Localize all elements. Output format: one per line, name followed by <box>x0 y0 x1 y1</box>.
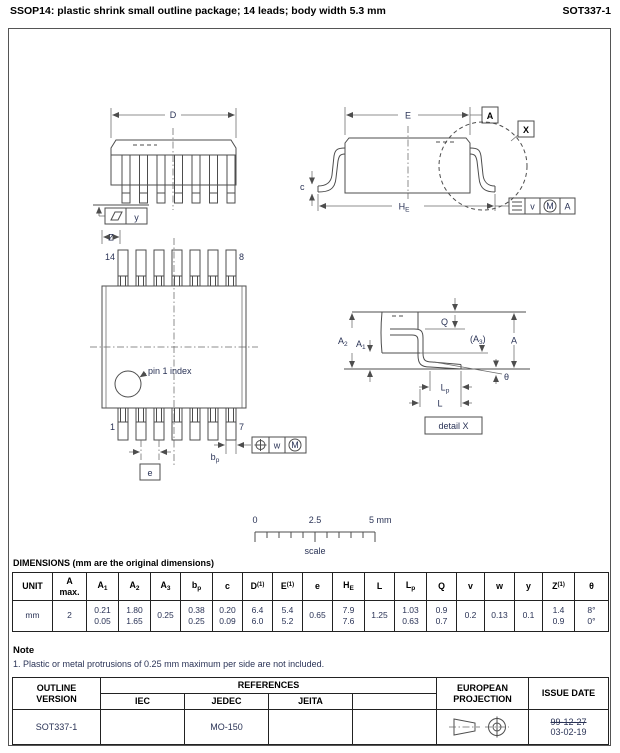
dim-label-e-pitch: e <box>147 468 152 478</box>
col-a3: A3 <box>151 573 181 601</box>
blank-reference-header <box>353 694 437 710</box>
val-bp: 0.380.25 <box>181 601 213 632</box>
dimensions-header-row: UNIT Amax. A1 A2 A3 bp c D(1) E(1) e HE … <box>13 573 609 601</box>
european-projection-header: EUROPEANPROJECTION <box>437 678 529 710</box>
datum-a-label: A <box>487 111 494 121</box>
val-e: 0.65 <box>303 601 333 632</box>
val-theta: 8°0° <box>575 601 609 632</box>
flatness-symbol <box>111 212 122 220</box>
front-view-leads <box>122 155 235 203</box>
val-a2: 1.801.65 <box>119 601 151 632</box>
col-c: c <box>213 573 243 601</box>
footer-value-row: SOT337-1 MO-150 99-12-27 03-02-19 <box>13 710 609 745</box>
pin-1-label: 1 <box>110 422 115 432</box>
pin-8-label: 8 <box>239 252 244 262</box>
val-unit: mm <box>13 601 53 632</box>
scale-bar-ruler <box>255 532 375 542</box>
dim-label-a3: (A3) <box>470 334 486 346</box>
dimensions-table: UNIT Amax. A1 A2 A3 bp c D(1) E(1) e HE … <box>12 572 609 632</box>
dim-label-l: L <box>437 399 442 409</box>
issue-date-value: 99-12-27 03-02-19 <box>529 710 609 745</box>
val-a-max: 2 <box>53 601 87 632</box>
dim-label-bp: bp <box>211 452 220 464</box>
col-a-max: Amax. <box>53 573 87 601</box>
tol-w-label: w <box>273 441 281 451</box>
tol-datum-a-label: A <box>564 202 570 212</box>
dim-label-z: Z <box>108 233 114 243</box>
scale-caption: scale <box>304 546 325 556</box>
col-l: L <box>365 573 395 601</box>
val-he: 7.97.6 <box>333 601 365 632</box>
col-e-cap: E(1) <box>273 573 303 601</box>
val-d: 6.46.0 <box>243 601 273 632</box>
dim-label-c: c <box>300 182 305 192</box>
symmetry-symbol <box>512 202 522 210</box>
col-d: D(1) <box>243 573 273 601</box>
scale-tick-2-5: 2.5 <box>309 515 322 525</box>
footer-header-row-1: OUTLINEVERSION REFERENCES EUROPEANPROJEC… <box>13 678 609 694</box>
col-unit: UNIT <box>13 573 53 601</box>
dim-label-d: D <box>170 110 177 120</box>
jeita-header: JEITA <box>269 694 353 710</box>
col-w: w <box>485 573 515 601</box>
val-z: 1.40.9 <box>543 601 575 632</box>
val-c: 0.200.09 <box>213 601 243 632</box>
mmc-modifier-label: M <box>546 201 554 211</box>
footer-reference-table: OUTLINEVERSION REFERENCES EUROPEANPROJEC… <box>12 677 609 745</box>
detail-x-caption-box: detail X <box>425 417 482 434</box>
col-lp: Lp <box>395 573 427 601</box>
issue-date-new: 03-02-19 <box>529 727 608 737</box>
detail-x-ref-label: X <box>523 125 529 135</box>
val-q: 0.90.7 <box>427 601 457 632</box>
dim-label-a: A <box>511 336 517 346</box>
col-e: e <box>303 573 333 601</box>
datum-a-box: A <box>482 107 498 123</box>
side-view-drawing: E A X c HE v M A <box>298 93 612 230</box>
iec-header: IEC <box>101 694 185 710</box>
dim-label-e: E <box>405 111 411 121</box>
detail-x-caption: detail X <box>438 421 468 431</box>
top-pins <box>118 250 236 286</box>
symmetry-tolerance-frame: v M A <box>509 198 575 214</box>
iec-value <box>101 710 185 745</box>
jeita-value <box>269 710 353 745</box>
references-header: REFERENCES <box>101 678 437 694</box>
pin-14-label: 14 <box>105 252 115 262</box>
col-v: v <box>457 573 485 601</box>
top-view-drawing: Z 14 8 1 7 pin 1 index e bp w M <box>88 226 310 478</box>
col-a2: A2 <box>119 573 151 601</box>
dim-label-q: Q <box>441 317 448 327</box>
pin-7-label: 7 <box>239 422 244 432</box>
val-e-cap: 5.45.2 <box>273 601 303 632</box>
jedec-header: JEDEC <box>185 694 269 710</box>
note-item-1: 1. Plastic or metal protrusions of 0.25 … <box>13 659 324 669</box>
issue-date-old: 99-12-27 <box>529 717 608 727</box>
pitch-e-box: e <box>140 464 160 480</box>
val-w: 0.13 <box>485 601 515 632</box>
scale-tick-5mm: 5 mm <box>369 515 392 525</box>
val-y: 0.1 <box>515 601 543 632</box>
outline-version-value: SOT337-1 <box>13 710 101 745</box>
bottom-pins <box>118 408 236 440</box>
mmc-modifier-label-2: M <box>291 440 299 450</box>
note-heading: Note <box>13 645 34 656</box>
position-symbol <box>255 439 267 451</box>
jedec-value: MO-150 <box>185 710 269 745</box>
val-lp: 1.030.63 <box>395 601 427 632</box>
front-view-geometry <box>93 108 236 216</box>
issue-date-header: ISSUE DATE <box>529 678 609 710</box>
col-q: Q <box>427 573 457 601</box>
front-view-drawing: D y <box>85 98 300 226</box>
tol-v-label: v <box>530 202 535 212</box>
dimensions-value-row: mm 2 0.210.05 1.801.65 0.25 0.380.25 0.2… <box>13 601 609 632</box>
first-angle-projection-icon <box>448 714 518 740</box>
dim-label-a1: A1 <box>356 339 366 351</box>
scale-bar: 0 2.5 5 mm scale <box>245 512 395 557</box>
dim-label-a2: A2 <box>338 336 348 348</box>
col-y: y <box>515 573 543 601</box>
detail-x-region-circle <box>439 122 527 210</box>
position-tolerance-frame: w M <box>252 437 306 453</box>
projection-symbol-cell <box>437 710 529 745</box>
pin1-index-circle <box>115 371 141 397</box>
col-bp: bp <box>181 573 213 601</box>
blank-reference-value <box>353 710 437 745</box>
val-a3: 0.25 <box>151 601 181 632</box>
val-l: 1.25 <box>365 601 395 632</box>
col-he: HE <box>333 573 365 601</box>
detail-x-drawing: A2 A1 Q (A3) A θ Lp L detail X <box>330 283 615 448</box>
top-view-geometry <box>90 230 258 466</box>
val-v: 0.2 <box>457 601 485 632</box>
flatness-tolerance-box: y <box>105 208 147 224</box>
col-theta: θ <box>575 573 609 601</box>
dim-label-theta: θ <box>504 372 509 382</box>
datum-y-label: y <box>134 213 139 223</box>
page-title: SSOP14: plastic shrink small outline pac… <box>10 5 386 17</box>
dimensions-heading: DIMENSIONS (mm are the original dimensio… <box>13 558 214 568</box>
detail-x-callout-box: X <box>518 121 534 137</box>
scale-tick-0: 0 <box>252 515 257 525</box>
col-a1: A1 <box>87 573 119 601</box>
pin1-index-label: pin 1 index <box>148 366 192 376</box>
outline-version-header: OUTLINEVERSION <box>13 678 101 710</box>
val-a1: 0.210.05 <box>87 601 119 632</box>
package-code: SOT337-1 <box>563 5 611 17</box>
col-z: Z(1) <box>543 573 575 601</box>
